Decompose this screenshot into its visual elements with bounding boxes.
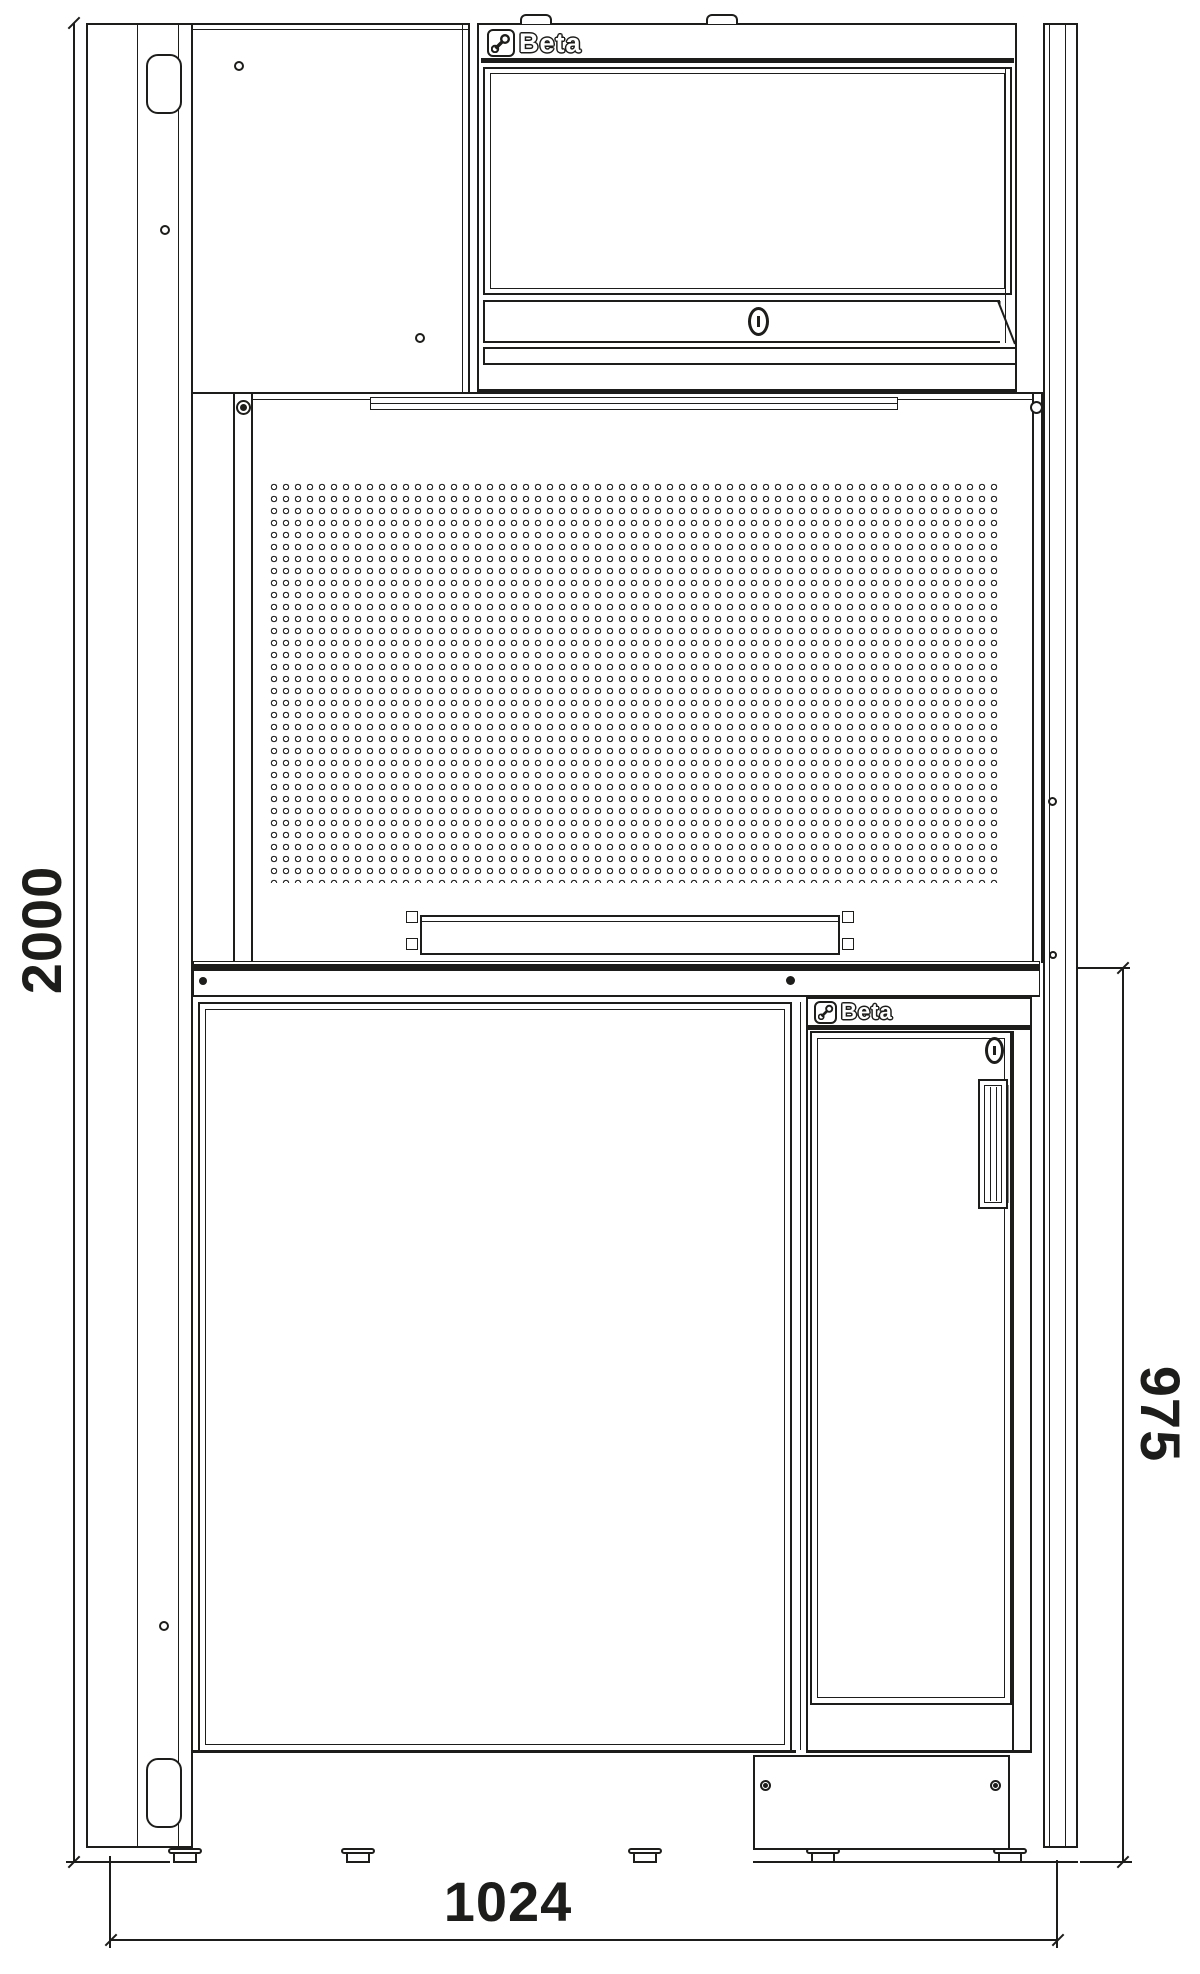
- upright-hole: [160, 225, 170, 235]
- perforated-panel: [268, 481, 1000, 883]
- dim-width-ext-left: [109, 1856, 111, 1948]
- pegboard-pivot-right: [1030, 401, 1043, 414]
- upright-slot-bottom: [146, 1758, 182, 1828]
- left-upright: [86, 23, 193, 1848]
- tray-bracket: [406, 911, 418, 923]
- plinth-screw-dot: [763, 1783, 768, 1788]
- open-shelf-compartment: [193, 23, 470, 392]
- leveling-foot-body: [811, 1854, 835, 1863]
- dim-height-label: 2000: [12, 848, 72, 1012]
- upright-slot-top: [146, 54, 182, 114]
- base-cabinet-right-door-panel: [817, 1038, 1005, 1698]
- shelf-hole: [234, 61, 244, 71]
- worktop-edge-band: [193, 964, 1040, 971]
- lock-icon: [748, 307, 769, 336]
- upright-hole: [1049, 951, 1057, 959]
- plinth-right: [753, 1755, 1010, 1850]
- right-upright-line: [1065, 23, 1066, 1848]
- upright-hole: [159, 1621, 169, 1631]
- dim-bench-line: [1122, 968, 1124, 1862]
- pegboard-frame-left: [233, 394, 253, 963]
- base-logo-band-underline: [806, 1025, 1032, 1030]
- dim-width-ext-right: [1056, 1860, 1058, 1948]
- mounting-tab: [706, 14, 738, 24]
- worktop-screw: [199, 977, 207, 985]
- worktop-screw: [786, 976, 795, 985]
- beta-logo-base-cabinet: Beta: [814, 1000, 893, 1024]
- door-handle-line: [996, 1087, 997, 1201]
- base-cabinet-left-door-panel: [205, 1009, 785, 1745]
- wall-cabinet-rail: [483, 347, 1017, 365]
- wrench-icon: [814, 1001, 837, 1024]
- beta-logo-text: Beta: [519, 28, 582, 58]
- cabinet-gap-line: [800, 1002, 801, 1750]
- base-cabinet-right-bottom: [806, 1750, 1032, 1753]
- mounting-tab: [520, 14, 552, 24]
- upright-hole: [1048, 797, 1057, 806]
- tool-tray-line: [420, 921, 840, 922]
- leveling-foot-body: [346, 1854, 370, 1863]
- tray-bracket: [406, 938, 418, 950]
- door-handle-inner: [984, 1085, 1002, 1203]
- wall-cabinet-door-panel: [490, 73, 1005, 289]
- open-shelf-top-line: [193, 29, 470, 30]
- open-shelf-right-line: [462, 23, 463, 392]
- leveling-foot-body: [998, 1854, 1022, 1863]
- plinth-screw-dot: [993, 1783, 998, 1788]
- logo-band-underline: [481, 58, 1014, 63]
- dim-bench-label: 975: [1130, 1352, 1190, 1476]
- pegboard-pivot-left-dot: [240, 404, 247, 411]
- dim-width-label: 1024: [388, 1872, 628, 1932]
- wrench-icon: [487, 29, 515, 57]
- leveling-foot-body: [173, 1854, 197, 1863]
- beta-logo-text: Beta: [841, 1000, 893, 1024]
- leveling-foot-body: [633, 1854, 657, 1863]
- wall-cabinet-lock-panel: [483, 300, 1000, 343]
- base-cabinet-right-side-line: [1012, 1031, 1014, 1753]
- dim-height-line: [73, 23, 75, 1862]
- dim-height-ext-bottom: [66, 1861, 170, 1863]
- dim-width-line: [110, 1939, 1057, 1941]
- technical-drawing-canvas: 2000 975 1024 Beta: [0, 0, 1200, 1974]
- left-upright-line: [178, 23, 179, 1848]
- lock-icon: [985, 1037, 1004, 1064]
- wall-cabinet-side-line: [1005, 67, 1006, 343]
- base-cabinet-left-bottom: [193, 1750, 796, 1753]
- beta-logo-wall-cabinet: Beta: [487, 28, 582, 58]
- right-upright-line: [1049, 23, 1050, 1848]
- door-handle-line: [990, 1087, 991, 1201]
- pegboard-frame-right: [1032, 394, 1043, 963]
- left-upright-line: [137, 23, 138, 1848]
- pegboard-top-rail-line: [370, 403, 898, 404]
- floor-shadow-line: [753, 1861, 1078, 1863]
- tray-bracket: [842, 938, 854, 950]
- tray-bracket: [842, 911, 854, 923]
- shelf-hole: [415, 333, 425, 343]
- pegboard-top-line: [193, 392, 1043, 394]
